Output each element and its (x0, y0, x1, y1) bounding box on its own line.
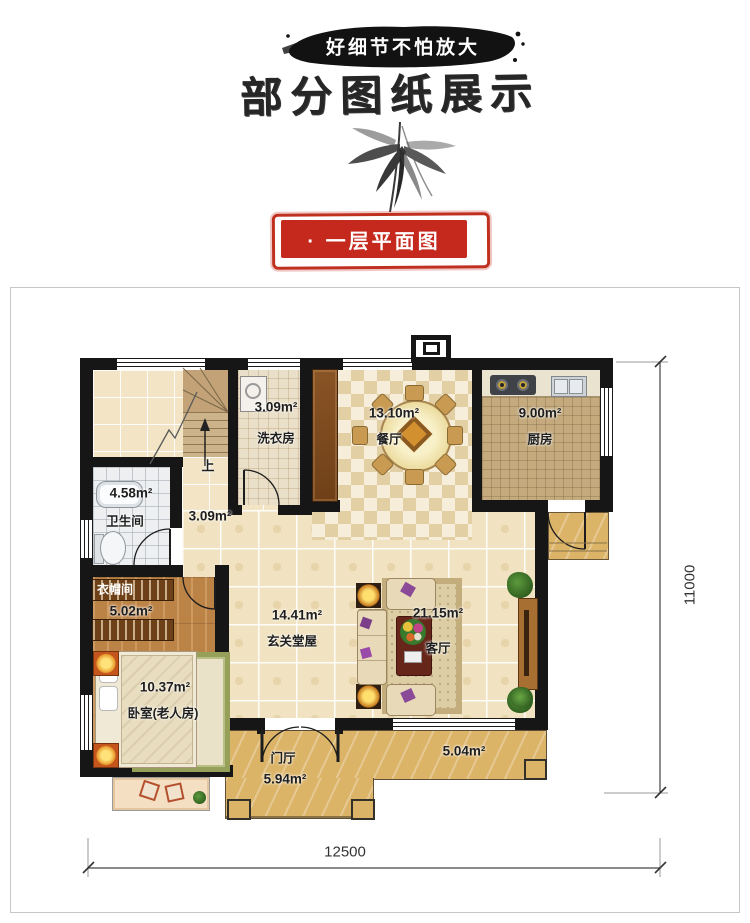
kitchen-name-label: 厨房 (527, 429, 552, 448)
dimension-right-label: 11000 (682, 565, 699, 606)
entry-hall-area-label: 14.41m² (272, 608, 322, 623)
poster-page: 好细节不怕放大 部分图纸展示 · 一层平面图 (0, 0, 750, 923)
foyer-area-label: 5.94m² (264, 772, 307, 787)
kitchen-area-label: 9.00m² (519, 406, 562, 421)
porch-area-label: 5.04m² (443, 744, 486, 759)
dimension-bottom-label: 12500 (324, 844, 366, 861)
side-porch-step-lines (548, 543, 607, 551)
laundry-area-label: 3.09m² (255, 400, 298, 415)
bathroom-name-label: 卫生间 (106, 511, 144, 530)
plan-linework (0, 0, 750, 923)
laundry-door-arc (244, 470, 279, 505)
living-area-label: 21.15m² (413, 606, 463, 621)
cloakroom-area-label: 5.02m² (110, 604, 153, 619)
stairs-up-label: 上 (201, 456, 214, 475)
dining-area-label: 13.10m² (369, 406, 419, 421)
entry-hall-name-label: 玄关堂屋 (267, 631, 317, 650)
bathroom-door-arc (134, 529, 170, 565)
bathroom-area-label: 4.58m² (110, 486, 153, 501)
bedroom-name-label: 卧室(老人房) (128, 703, 199, 722)
stair-up-arrowhead (200, 418, 210, 431)
bedroom-area-label: 10.37m² (140, 680, 190, 695)
corridor-area-label: 3.09m² (189, 509, 232, 524)
bedroom-door-arc (183, 577, 215, 609)
stair-break-line (150, 392, 197, 464)
dining-name-label: 餐厅 (376, 429, 401, 448)
living-name-label: 客厅 (425, 638, 450, 657)
laundry-name-label: 洗衣房 (257, 428, 295, 447)
dimension-bottom (83, 838, 666, 877)
cloakroom-name-label: 衣帽间 (97, 581, 133, 598)
front-door-arc-right (301, 727, 338, 762)
dimension-right (604, 356, 668, 798)
stair-winder-lines (183, 368, 228, 412)
foyer-name-label: 门厅 (270, 748, 295, 767)
